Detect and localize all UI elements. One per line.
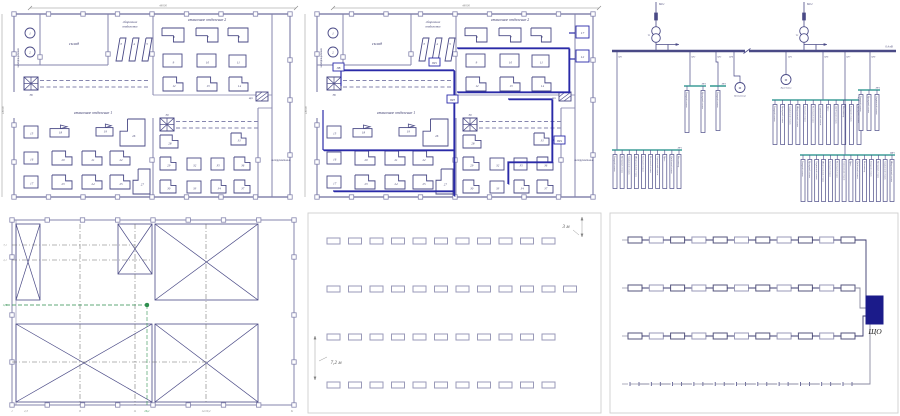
svg-text:7,2 м: 7,2 м xyxy=(330,360,342,366)
svg-text:37: 37 xyxy=(241,186,245,190)
lighting-layout-plan: 3 м7,2 м xyxy=(305,212,605,416)
svg-text:Расточной станок: Расточной станок xyxy=(649,155,652,173)
svg-text:1,05: 1,05 xyxy=(3,304,8,307)
svg-text:39: 39 xyxy=(166,113,170,117)
svg-text:2,1: 2,1 xyxy=(3,259,7,262)
svg-text:1: 1 xyxy=(29,32,31,36)
svg-text:Строгальный станок: Строгальный станок xyxy=(656,156,659,175)
svg-text:15: 15 xyxy=(30,132,34,136)
svg-text:Токарный станок: Токарный станок xyxy=(716,92,719,108)
floor-plan-power-wiring: 4800018000складсборочноеотделениестаночн… xyxy=(303,0,605,212)
svg-text:QF5: QF5 xyxy=(788,57,793,59)
svg-text:21: 21 xyxy=(394,158,398,162)
floor-plan-equipment: 4800018000складсборочноеотделениестаночн… xyxy=(0,0,302,212)
svg-text:17: 17 xyxy=(333,182,337,186)
svg-text:станочное отделение 2: станочное отделение 2 xyxy=(491,18,529,22)
svg-text:14: 14 xyxy=(238,84,242,88)
svg-text:48000: 48000 xyxy=(462,4,470,8)
svg-text:QF1: QF1 xyxy=(618,57,622,59)
svg-text:10: 10 xyxy=(509,60,513,64)
svg-text:36: 36 xyxy=(241,163,245,167)
svg-text:QF7: QF7 xyxy=(846,57,851,59)
svg-text:1: 1 xyxy=(332,32,334,36)
svg-text:22: 22 xyxy=(119,158,123,162)
svg-text:станочное отделение 1: станочное отделение 1 xyxy=(74,111,112,115)
svg-text:11: 11 xyxy=(134,409,137,413)
svg-text:Т2: Т2 xyxy=(796,34,799,37)
svg-text:26: 26 xyxy=(132,134,136,138)
svg-text:27: 27 xyxy=(141,183,145,187)
svg-text:ЩО: ЩО xyxy=(867,327,882,336)
svg-text:Сверлильный станок: Сверлильный станок xyxy=(815,161,818,180)
svg-text:сборочное: сборочное xyxy=(426,20,441,24)
svg-text:28: 28 xyxy=(168,141,172,145)
svg-text:Долбёжный станок: Долбёжный станок xyxy=(856,160,859,179)
svg-text:Фрезерный станок: Фрезерный станок xyxy=(877,161,880,178)
svg-text:34: 34 xyxy=(521,186,525,190)
svg-text:ПР2: ПР2 xyxy=(701,83,707,86)
svg-text:12: 12 xyxy=(581,55,585,59)
svg-text:28: 28 xyxy=(471,141,475,145)
svg-text:38: 38 xyxy=(333,93,337,97)
svg-text:32: 32 xyxy=(496,164,500,168)
svg-text:электрощитовая: электрощитовая xyxy=(17,48,20,68)
svg-text:37: 37 xyxy=(544,186,548,190)
svg-text:Сверлильный станок: Сверлильный станок xyxy=(627,156,630,175)
svg-text:12: 12 xyxy=(172,84,176,88)
svg-text:16: 16 xyxy=(333,158,337,162)
svg-text:QF2: QF2 xyxy=(691,57,696,59)
svg-text:QF4: QF4 xyxy=(729,56,734,59)
svg-text:25: 25 xyxy=(119,182,123,186)
svg-text:Шлифовальный станок: Шлифовальный станок xyxy=(796,105,799,127)
svg-text:33: 33 xyxy=(496,187,500,191)
svg-text:Токарный станок: Токарный станок xyxy=(685,92,688,108)
svg-text:Фрезерный станок: Фрезерный станок xyxy=(808,161,811,178)
svg-text:11: 11 xyxy=(237,61,240,65)
svg-text:10: 10 xyxy=(206,60,210,64)
svg-text:электрощитовая: электрощитовая xyxy=(320,48,323,68)
svg-text:Долбёжный станок: Долбёжный станок xyxy=(834,105,837,124)
building-axes-plan: 7,12,11,0512,381126,112/10,2К xyxy=(0,212,302,416)
svg-text:Сверлильный станок: Сверлильный станок xyxy=(875,96,878,115)
svg-text:ВЛ-1: ВЛ-1 xyxy=(659,3,665,6)
svg-text:Пресс: Пресс xyxy=(663,155,665,161)
svg-text:18: 18 xyxy=(59,131,63,135)
svg-text:ПР4: ПР4 xyxy=(556,140,563,143)
svg-text:ПР3: ПР3 xyxy=(449,99,456,102)
svg-text:26,1: 26,1 xyxy=(144,409,150,414)
svg-text:Заточной станок: Заточной станок xyxy=(804,106,807,122)
svg-text:Вентилятор: Вентилятор xyxy=(863,161,865,172)
svg-text:ВЛ-2: ВЛ-2 xyxy=(807,3,813,6)
svg-text:QF6: QF6 xyxy=(824,57,829,59)
svg-text:Токарный станок: Токарный станок xyxy=(613,156,616,172)
svg-text:36: 36 xyxy=(544,163,548,167)
svg-text:склад: склад xyxy=(372,41,382,46)
svg-text:38: 38 xyxy=(30,93,34,97)
svg-text:ПР5: ПР5 xyxy=(875,87,881,90)
svg-text:32: 32 xyxy=(193,164,197,168)
svg-text:20: 20 xyxy=(364,158,368,162)
svg-text:23: 23 xyxy=(364,182,368,186)
svg-text:Кран-балка: Кран-балка xyxy=(780,87,793,90)
svg-text:ЩР1: ЩР1 xyxy=(889,152,895,155)
svg-text:39: 39 xyxy=(469,113,473,117)
svg-text:Долбёжный станок: Долбёжный станок xyxy=(670,155,673,174)
svg-text:18: 18 xyxy=(362,131,366,135)
svg-text:Фрезерный станок: Фрезерный станок xyxy=(701,92,704,109)
svg-text:К: К xyxy=(290,409,294,413)
svg-text:12: 12 xyxy=(475,84,479,88)
svg-text:19: 19 xyxy=(104,130,108,134)
svg-text:Сверлильный станок: Сверлильный станок xyxy=(883,161,886,180)
svg-text:ЩО: ЩО xyxy=(248,97,253,100)
svg-text:0,4 кВ: 0,4 кВ xyxy=(885,46,893,49)
svg-text:Сверлильный станок: Сверлильный станок xyxy=(788,106,791,125)
svg-text:31: 31 xyxy=(238,139,242,143)
svg-text:19: 19 xyxy=(407,130,411,134)
svg-text:48000: 48000 xyxy=(159,4,167,8)
svg-text:Строгальный станок: Строгальный станок xyxy=(819,106,822,125)
svg-text:Расточной станок: Расточной станок xyxy=(811,105,814,123)
svg-text:QF3: QF3 xyxy=(717,57,722,59)
svg-text:Вентилятор: Вентилятор xyxy=(734,96,747,98)
svg-text:Вентилятор: Вентилятор xyxy=(677,156,679,167)
svg-text:22: 22 xyxy=(422,158,426,162)
svg-text:Заточной станок: Заточной станок xyxy=(642,156,645,172)
svg-text:31: 31 xyxy=(541,139,545,143)
svg-text:Фрезерный станок: Фрезерный станок xyxy=(620,156,623,173)
svg-text:24: 24 xyxy=(91,182,95,186)
svg-text:8: 8 xyxy=(79,409,81,413)
svg-text:18000: 18000 xyxy=(1,106,5,114)
svg-text:3 м: 3 м xyxy=(562,224,570,230)
svg-text:2: 2 xyxy=(29,51,31,55)
svg-text:1: 1 xyxy=(11,409,13,413)
svg-text:15: 15 xyxy=(333,132,337,136)
svg-text:18000: 18000 xyxy=(304,106,308,114)
svg-text:35: 35 xyxy=(520,164,524,168)
svg-text:Фрезерный станок: Фрезерный станок xyxy=(781,106,784,123)
svg-text:35: 35 xyxy=(217,164,221,168)
svg-text:Строгальный станок: Строгальный станок xyxy=(842,161,845,180)
svg-text:30: 30 xyxy=(470,186,474,190)
svg-text:сборочное: сборочное xyxy=(123,20,138,24)
svg-text:33: 33 xyxy=(193,187,197,191)
svg-text:станочное отделение 2: станочное отделение 2 xyxy=(188,18,226,22)
svg-text:М: М xyxy=(785,78,788,82)
svg-text:отделение: отделение xyxy=(425,25,441,29)
svg-text:12/10,2: 12/10,2 xyxy=(201,409,211,414)
svg-text:склад: склад xyxy=(69,41,79,46)
svg-text:7,1: 7,1 xyxy=(3,244,7,247)
svg-text:ПР1: ПР1 xyxy=(431,62,438,65)
svg-text:ПВ: ПВ xyxy=(336,67,341,70)
svg-text:Пресс: Пресс xyxy=(827,105,829,111)
svg-text:инструментальн.: инструментальн. xyxy=(574,159,594,162)
svg-text:29: 29 xyxy=(167,163,171,167)
svg-text:Фрезерный станок: Фрезерный станок xyxy=(867,96,870,113)
svg-text:Расточной станок: Расточной станок xyxy=(835,160,838,178)
svg-text:29: 29 xyxy=(470,163,474,167)
svg-text:Шлифовальный станок: Шлифовальный станок xyxy=(635,155,638,177)
svg-text:2,3: 2,3 xyxy=(24,409,28,414)
svg-text:QF8: QF8 xyxy=(871,57,876,59)
svg-text:Вентилятор: Вентилятор xyxy=(842,106,844,117)
svg-text:Пресс: Пресс xyxy=(849,160,851,166)
svg-text:30: 30 xyxy=(167,186,171,190)
svg-text:инструментальн.: инструментальн. xyxy=(271,159,291,162)
svg-text:Токарный станок: Токарный станок xyxy=(870,161,873,177)
svg-text:17: 17 xyxy=(581,31,585,35)
single-line-diagram: ВЛ-1Т1ВЛ-2Т20,4 кВQF1ПР1Токарный станокФ… xyxy=(608,0,900,212)
svg-text:Токарный станок: Токарный станок xyxy=(773,106,776,122)
svg-text:16: 16 xyxy=(30,158,34,162)
svg-text:23: 23 xyxy=(61,182,65,186)
svg-text:Т1: Т1 xyxy=(648,34,651,37)
svg-text:14: 14 xyxy=(541,84,545,88)
svg-text:24: 24 xyxy=(394,182,398,186)
svg-text:13: 13 xyxy=(509,84,513,88)
svg-text:ПР3: ПР3 xyxy=(721,83,727,86)
svg-text:25: 25 xyxy=(422,182,426,186)
svg-text:Токарный станок: Токарный станок xyxy=(850,106,853,122)
svg-text:21: 21 xyxy=(91,158,95,162)
svg-text:26: 26 xyxy=(435,134,439,138)
lighting-network-plan: ЩО xyxy=(608,212,900,416)
svg-text:11: 11 xyxy=(540,61,543,65)
svg-text:20: 20 xyxy=(61,158,65,162)
svg-text:34: 34 xyxy=(218,186,222,190)
drawing-canvas: 4800018000складсборочноеотделениестаночн… xyxy=(0,0,900,416)
svg-text:Токарный станок: Токарный станок xyxy=(859,96,862,112)
svg-text:станочное отделение 1: станочное отделение 1 xyxy=(377,111,415,115)
svg-text:17: 17 xyxy=(30,182,34,186)
svg-text:Шлифовальный станок: Шлифовальный станок xyxy=(822,160,825,182)
svg-text:Заточной станок: Заточной станок xyxy=(829,161,832,177)
svg-text:отделение: отделение xyxy=(122,25,138,29)
svg-text:27: 27 xyxy=(444,183,448,187)
svg-text:ПР1: ПР1 xyxy=(677,147,682,150)
svg-text:2: 2 xyxy=(332,51,334,55)
svg-text:Шлифовальный станок: Шлифовальный станок xyxy=(890,160,893,182)
svg-text:М: М xyxy=(739,86,742,90)
svg-text:13: 13 xyxy=(206,84,210,88)
svg-text:Токарный станок: Токарный станок xyxy=(801,161,804,177)
